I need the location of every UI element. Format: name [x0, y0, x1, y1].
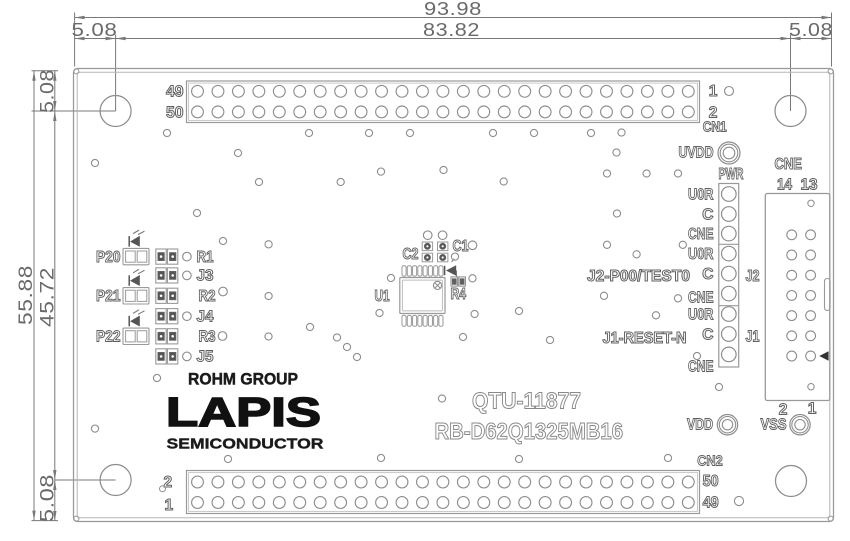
svg-text:J4: J4 — [197, 309, 214, 326]
svg-text:J1-RESET-N: J1-RESET-N — [603, 330, 687, 347]
svg-text:1: 1 — [808, 401, 817, 418]
svg-text:VDD: VDD — [687, 417, 713, 434]
svg-text:50: 50 — [166, 104, 184, 121]
svg-text:93.98: 93.98 — [424, 0, 482, 19]
svg-text:QTU-11877: QTU-11877 — [472, 388, 581, 414]
svg-text:C: C — [702, 206, 713, 223]
svg-text:U1: U1 — [375, 288, 390, 305]
svg-text:C2: C2 — [403, 246, 419, 263]
svg-text:5.08: 5.08 — [38, 69, 59, 113]
svg-text:R4: R4 — [451, 286, 467, 303]
svg-text:P22: P22 — [96, 329, 121, 346]
svg-text:50: 50 — [703, 473, 719, 490]
svg-text:J2: J2 — [746, 268, 760, 285]
svg-text:49: 49 — [703, 494, 719, 511]
svg-text:R2: R2 — [199, 288, 216, 305]
svg-text:LAPIS: LAPIS — [166, 389, 321, 435]
svg-text:C: C — [702, 326, 713, 343]
svg-text:R3: R3 — [199, 329, 216, 346]
svg-text:PWR: PWR — [719, 166, 744, 183]
svg-text:VSS: VSS — [761, 417, 787, 434]
svg-text:J1: J1 — [746, 328, 760, 345]
svg-text:5.08: 5.08 — [72, 20, 118, 40]
svg-text:RB-D62Q1325MB16: RB-D62Q1325MB16 — [435, 418, 624, 444]
svg-text:5.08: 5.08 — [38, 474, 59, 522]
svg-text:U0R: U0R — [688, 306, 714, 323]
svg-text:J3: J3 — [197, 268, 214, 285]
svg-text:P20: P20 — [96, 249, 121, 266]
svg-text:CNE: CNE — [775, 156, 803, 173]
svg-text:ROHM GROUP: ROHM GROUP — [188, 370, 298, 389]
svg-text:1: 1 — [164, 497, 173, 514]
svg-text:14: 14 — [777, 177, 792, 194]
svg-text:CN2: CN2 — [697, 452, 723, 469]
svg-text:83.82: 83.82 — [423, 20, 480, 40]
svg-text:U0R: U0R — [688, 186, 714, 203]
svg-text:R1: R1 — [197, 249, 214, 266]
svg-text:1: 1 — [709, 83, 718, 100]
svg-text:P21: P21 — [96, 288, 121, 305]
svg-text:CNE: CNE — [688, 289, 714, 306]
svg-text:C: C — [702, 266, 713, 283]
svg-text:UVDD: UVDD — [679, 145, 714, 162]
svg-text:CNE: CNE — [688, 358, 714, 375]
svg-text:13: 13 — [801, 177, 818, 194]
svg-text:C1: C1 — [453, 238, 469, 255]
svg-text:J5: J5 — [197, 349, 214, 366]
svg-text:J2-P00/TEST0: J2-P00/TEST0 — [587, 268, 690, 285]
svg-text:SEMICONDUCTOR: SEMICONDUCTOR — [167, 436, 324, 453]
svg-text:U0R: U0R — [688, 246, 714, 263]
svg-text:CN1: CN1 — [703, 120, 727, 136]
svg-text:49: 49 — [166, 84, 184, 101]
svg-text:45.72: 45.72 — [38, 267, 59, 327]
svg-text:5.08: 5.08 — [789, 20, 833, 40]
svg-text:CNE: CNE — [688, 226, 714, 243]
svg-text:55.88: 55.88 — [16, 265, 37, 325]
svg-text:2: 2 — [163, 474, 172, 491]
